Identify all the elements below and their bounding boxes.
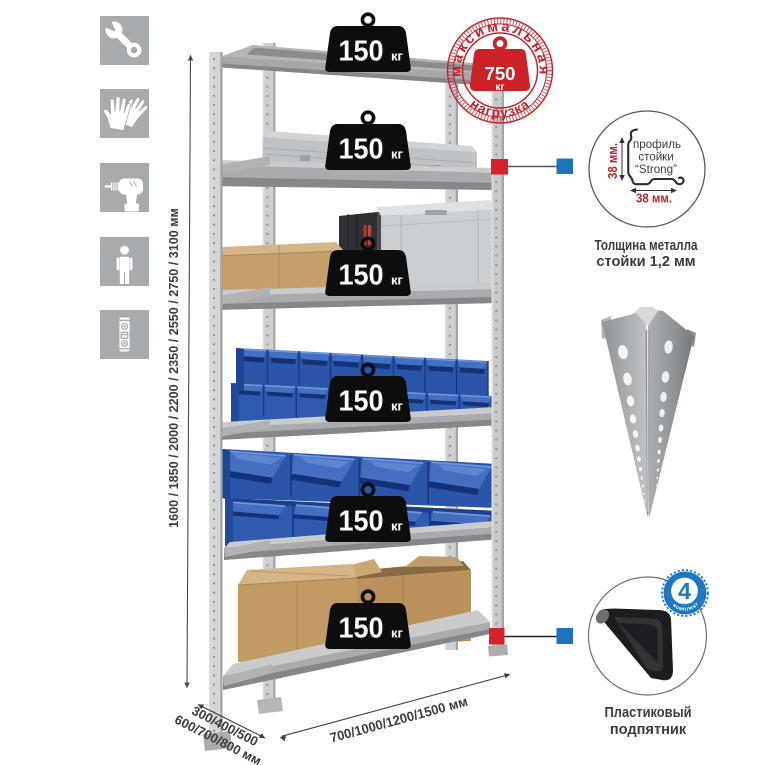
svg-text:150: 150 [339,613,384,645]
svg-text:кг: кг [391,399,404,414]
svg-text:“Strong”: “Strong” [635,163,677,176]
svg-text:кг: кг [391,626,404,641]
svg-text:150: 150 [339,134,384,166]
svg-text:стойки: стойки [638,151,673,164]
svg-text:стойки 1,2 мм: стойки 1,2 мм [596,254,695,270]
svg-text:750: 750 [485,63,516,84]
svg-text:профиль: профиль [633,138,681,151]
svg-text:кг: кг [391,49,404,64]
svg-text:150: 150 [339,386,384,418]
svg-text:38 мм.: 38 мм. [636,192,672,206]
svg-text:кг: кг [391,147,404,162]
svg-text:150: 150 [339,506,384,538]
svg-text:150: 150 [339,36,384,68]
svg-text:Пластиковый: Пластиковый [605,705,692,721]
svg-text:кг: кг [391,519,404,534]
svg-text:1600 / 1850 / 2000 / 2200 / 23: 1600 / 1850 / 2000 / 2200 / 2350 / 2550 … [167,208,181,528]
svg-text:38 мм.: 38 мм. [606,143,620,179]
svg-text:кг: кг [391,273,404,288]
svg-text:150: 150 [339,260,384,292]
svg-text:подпятник: подпятник [610,722,687,738]
svg-text:Толщина металла: Толщина металла [595,238,699,254]
svg-text:кг: кг [495,82,504,93]
svg-text:4: 4 [678,578,691,604]
